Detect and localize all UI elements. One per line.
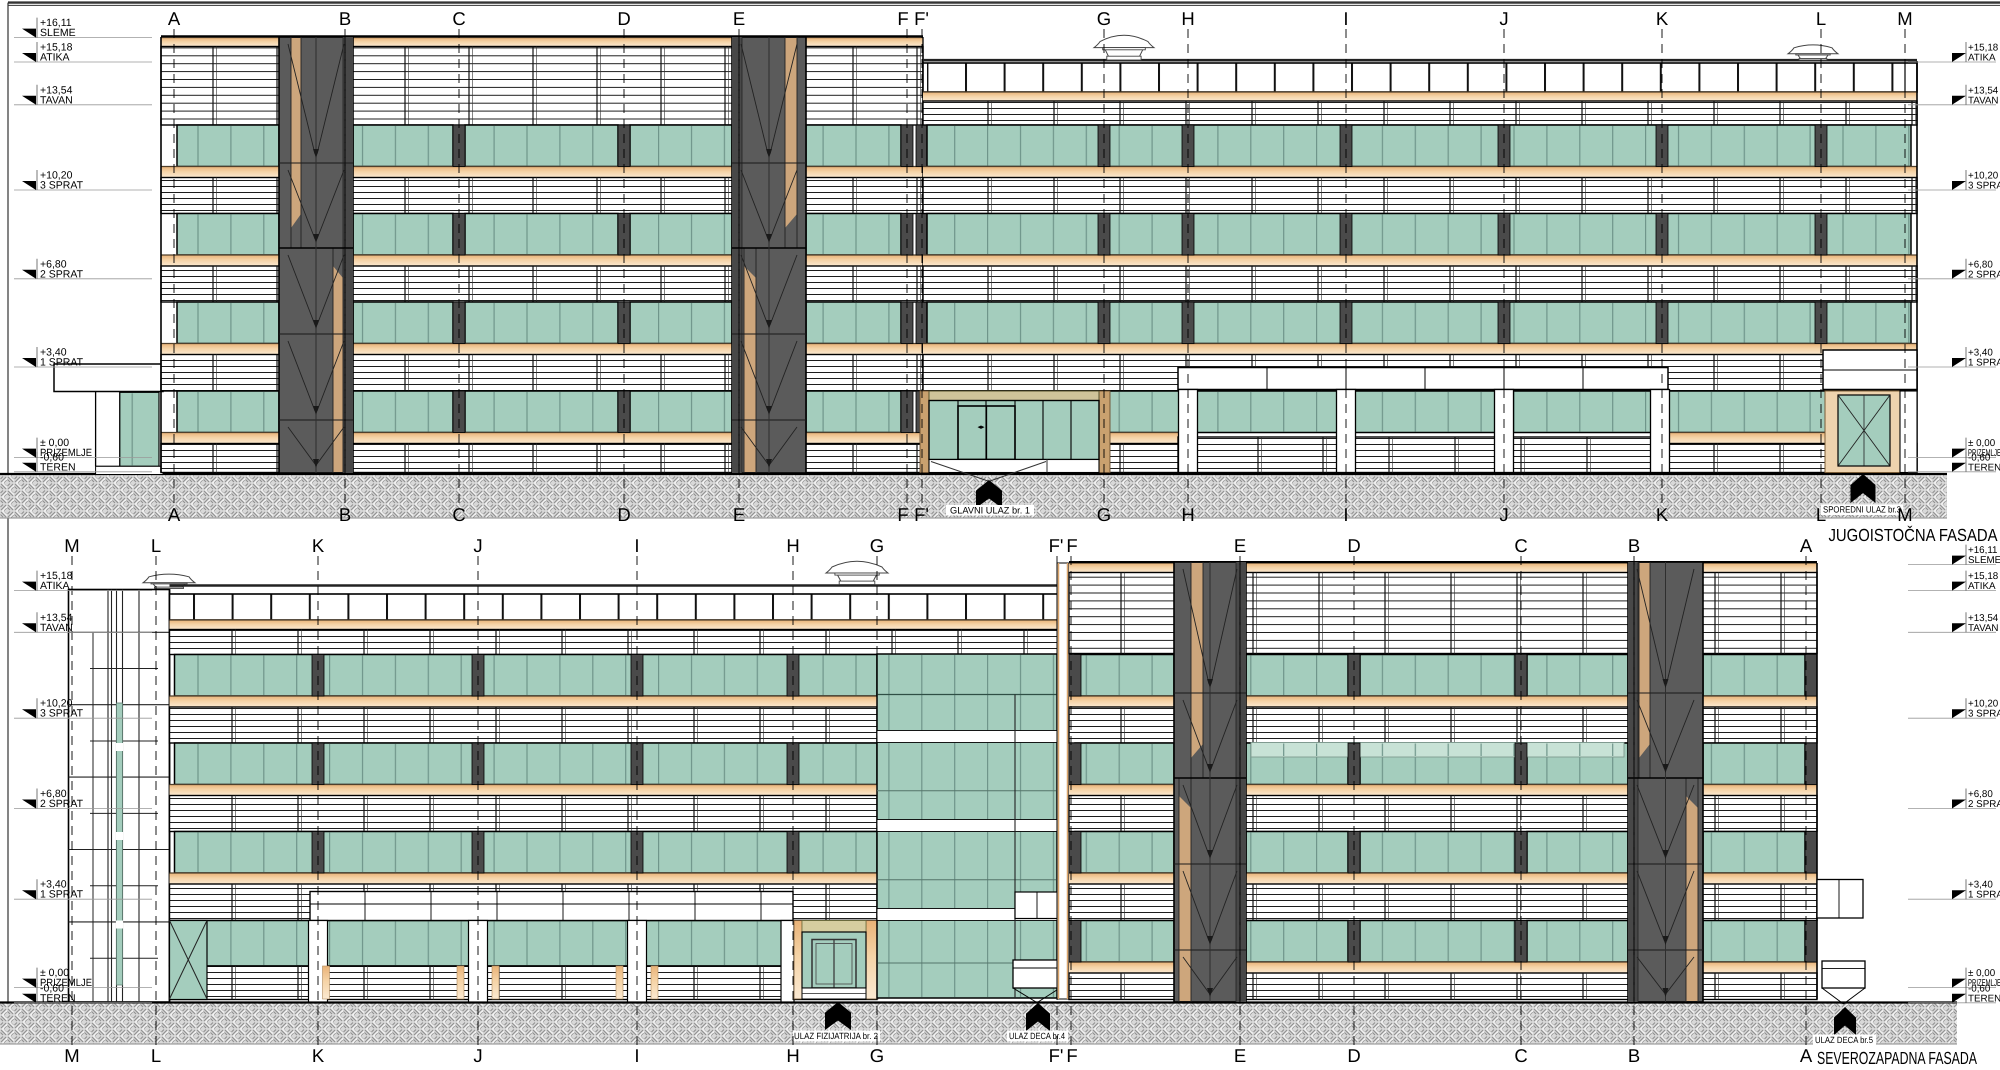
svg-text:1 SPRAT: 1 SPRAT <box>1968 890 2000 901</box>
svg-text:J: J <box>473 1045 482 1066</box>
svg-text:H: H <box>1181 504 1194 525</box>
svg-text:C: C <box>452 8 465 29</box>
svg-text:K: K <box>312 1045 325 1066</box>
svg-text:SLEME: SLEME <box>40 27 76 39</box>
svg-text:A: A <box>1800 1045 1813 1066</box>
svg-text:E: E <box>1234 535 1246 556</box>
svg-text:B: B <box>1628 1045 1640 1066</box>
svg-text:2 SPRAT: 2 SPRAT <box>1968 799 2000 810</box>
svg-text:JUGOISTOČNA FASADA: JUGOISTOČNA FASADA <box>1829 525 1998 545</box>
svg-text:ULAZ DECA br.5: ULAZ DECA br.5 <box>1815 1035 1873 1045</box>
svg-text:3 SPRAT: 3 SPRAT <box>40 180 84 192</box>
svg-text:F': F' <box>914 504 929 525</box>
svg-text:TAVAN: TAVAN <box>40 622 73 634</box>
svg-text:TAVAN: TAVAN <box>1968 623 1998 634</box>
svg-text:J: J <box>1499 8 1508 29</box>
svg-text:H: H <box>786 535 799 556</box>
svg-text:ATIKA: ATIKA <box>40 580 70 592</box>
svg-text:M: M <box>1897 504 1912 525</box>
svg-text:I: I <box>1343 8 1348 29</box>
svg-text:◂▸: ◂▸ <box>977 424 985 431</box>
svg-text:F': F' <box>914 8 929 29</box>
svg-text:SPOREDNI ULAZ br.3: SPOREDNI ULAZ br.3 <box>1823 505 1901 515</box>
svg-text:J: J <box>473 535 482 556</box>
svg-text:K: K <box>312 535 325 556</box>
svg-text:TAVAN: TAVAN <box>1968 95 1998 106</box>
svg-text:B: B <box>339 504 351 525</box>
svg-text:K: K <box>1656 504 1669 525</box>
svg-text:2 SPRAT: 2 SPRAT <box>1968 269 2000 280</box>
svg-text:M: M <box>64 1045 79 1066</box>
svg-text:2 SPRAT: 2 SPRAT <box>40 798 84 810</box>
svg-text:G: G <box>870 535 884 556</box>
svg-text:B: B <box>339 8 351 29</box>
svg-text:I: I <box>1343 504 1348 525</box>
svg-text:E: E <box>733 8 745 29</box>
svg-text:F: F <box>897 504 908 525</box>
svg-text:E: E <box>733 504 745 525</box>
svg-text:L: L <box>1816 504 1826 525</box>
svg-text:TAVAN: TAVAN <box>40 94 73 106</box>
svg-text:TEREN: TEREN <box>40 461 76 473</box>
svg-text:F: F <box>897 8 908 29</box>
svg-text:SEVEROZAPADNA FASADA: SEVEROZAPADNA FASADA <box>1817 1048 1977 1068</box>
svg-text:1 SPRAT: 1 SPRAT <box>1968 358 2000 369</box>
svg-text:D: D <box>617 504 630 525</box>
svg-text:K: K <box>1656 8 1669 29</box>
svg-text:3 SPRAT: 3 SPRAT <box>1968 709 2000 720</box>
svg-text:TEREN: TEREN <box>1968 993 2000 1004</box>
svg-text:ATIKA: ATIKA <box>1968 53 1996 64</box>
svg-text:ATIKA: ATIKA <box>40 52 70 64</box>
svg-text:1 SPRAT: 1 SPRAT <box>40 889 84 901</box>
svg-text:B: B <box>1628 535 1640 556</box>
svg-text:TEREN: TEREN <box>1968 462 2000 473</box>
svg-text:M: M <box>1897 8 1912 29</box>
svg-text:G: G <box>1097 504 1111 525</box>
svg-text:C: C <box>1514 535 1527 556</box>
svg-text:F': F' <box>1049 1045 1064 1066</box>
svg-text:G: G <box>1097 8 1111 29</box>
svg-text:D: D <box>1347 1045 1360 1066</box>
svg-text:A: A <box>168 504 181 525</box>
svg-text:3 SPRAT: 3 SPRAT <box>1968 181 2000 192</box>
svg-text:SLEME: SLEME <box>1968 555 2000 566</box>
svg-text:I: I <box>634 1045 639 1066</box>
svg-text:L: L <box>151 535 161 556</box>
svg-text:F: F <box>1066 1045 1077 1066</box>
svg-text:A: A <box>168 8 181 29</box>
svg-text:L: L <box>151 1045 161 1066</box>
svg-text:A: A <box>1800 535 1813 556</box>
svg-text:E: E <box>1234 1045 1246 1066</box>
svg-text:L: L <box>1816 8 1826 29</box>
svg-text:F': F' <box>1049 535 1064 556</box>
svg-text:M: M <box>64 535 79 556</box>
svg-text:F: F <box>1066 535 1077 556</box>
svg-text:C: C <box>452 504 465 525</box>
svg-text:2 SPRAT: 2 SPRAT <box>40 268 84 280</box>
svg-text:I: I <box>634 535 639 556</box>
svg-text:H: H <box>1181 8 1194 29</box>
svg-text:J: J <box>1499 504 1508 525</box>
svg-text:3 SPRAT: 3 SPRAT <box>40 708 84 720</box>
svg-text:TEREN: TEREN <box>40 992 76 1004</box>
svg-text:H: H <box>786 1045 799 1066</box>
svg-text:ULAZ FIZIJATRIJA br. 2: ULAZ FIZIJATRIJA br. 2 <box>794 1031 878 1041</box>
svg-text:C: C <box>1514 1045 1527 1066</box>
svg-text:1 SPRAT: 1 SPRAT <box>40 357 84 369</box>
svg-text:G: G <box>870 1045 884 1066</box>
svg-text:D: D <box>617 8 630 29</box>
svg-text:ATIKA: ATIKA <box>1968 581 1996 592</box>
svg-text:D: D <box>1347 535 1360 556</box>
svg-text:GLAVNI ULAZ br. 1: GLAVNI ULAZ br. 1 <box>950 506 1030 517</box>
